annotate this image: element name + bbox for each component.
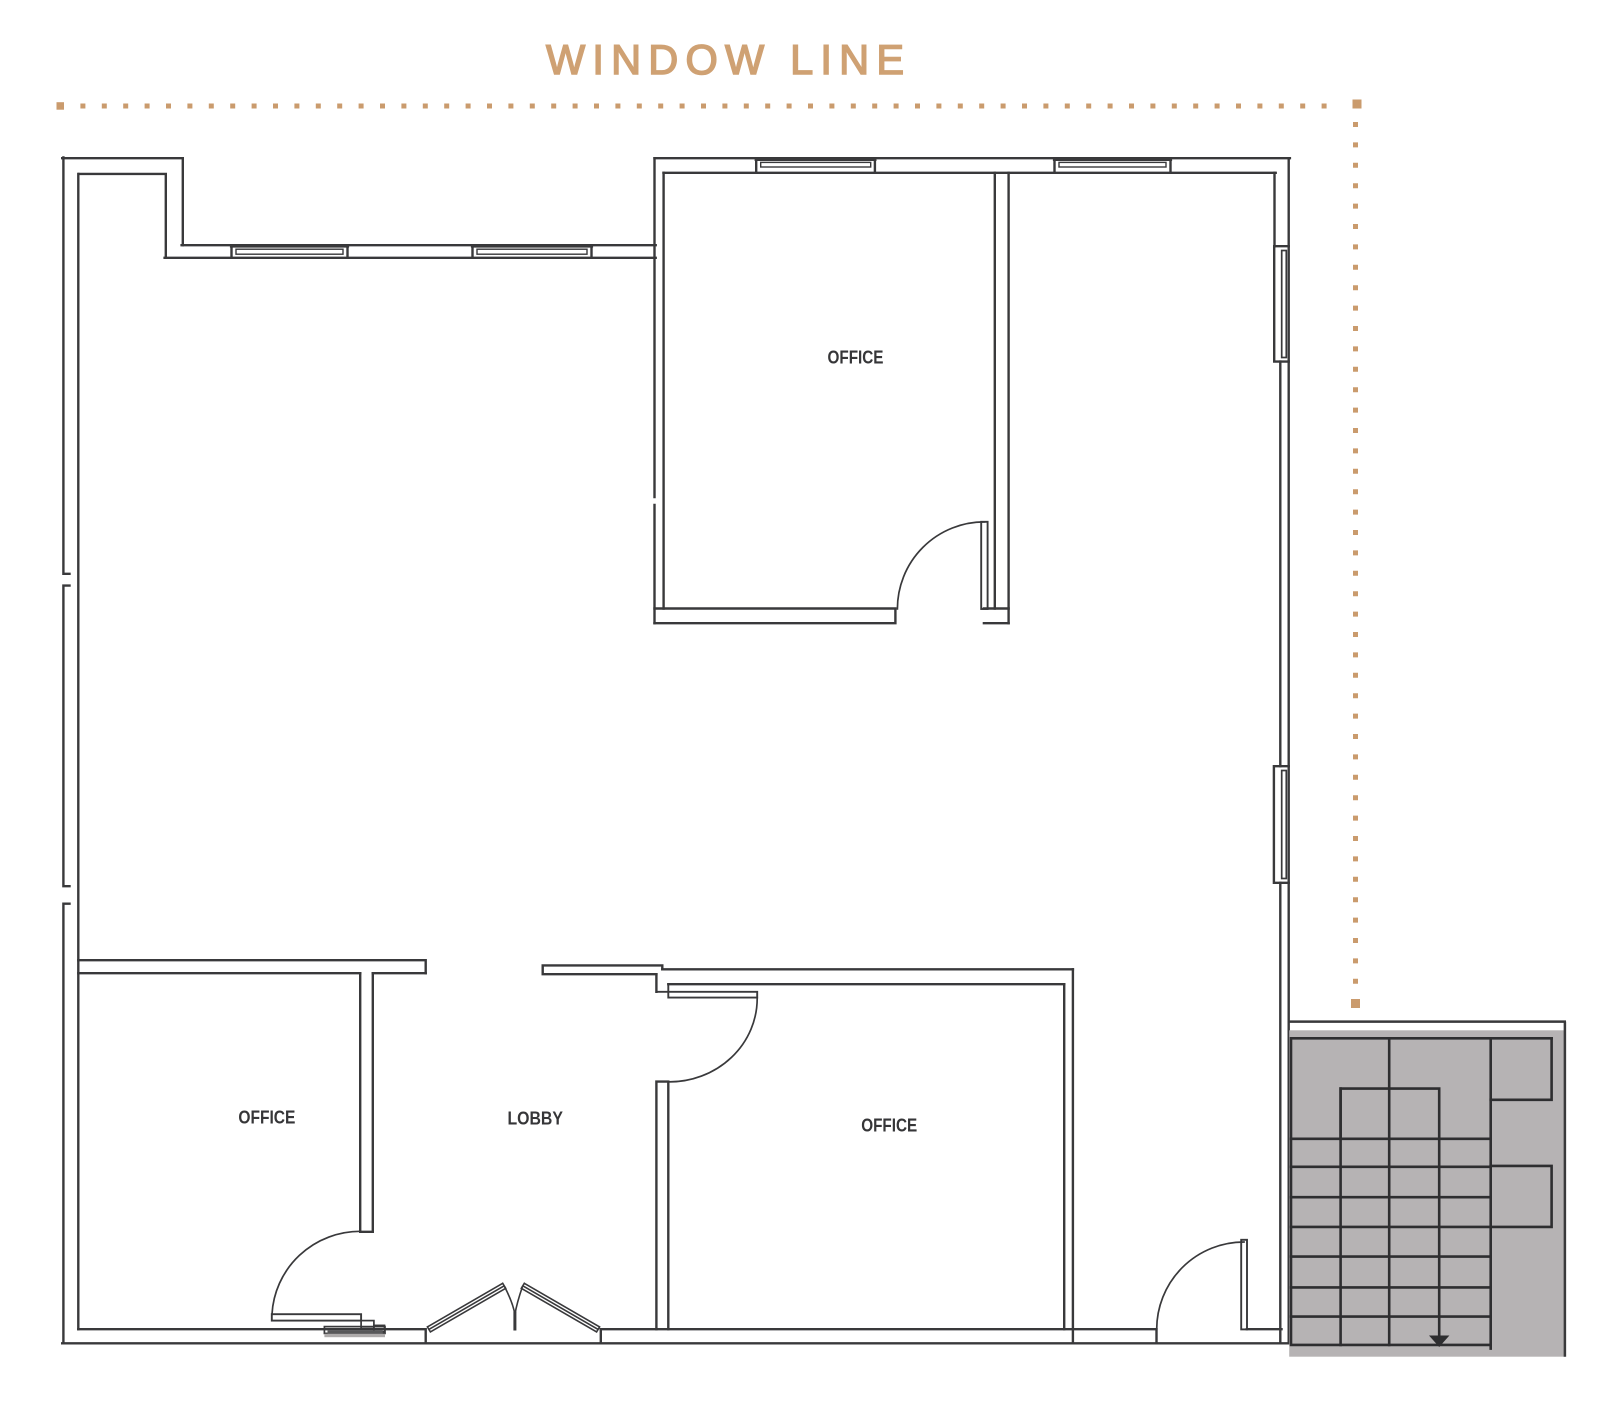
svg-text:OFFICE: OFFICE	[828, 347, 884, 368]
svg-text:OFFICE: OFFICE	[238, 1107, 295, 1128]
svg-text:OFFICE: OFFICE	[861, 1115, 917, 1136]
svg-text:LOBBY: LOBBY	[507, 1108, 563, 1129]
svg-text:WINDOW LINE: WINDOW LINE	[546, 36, 904, 83]
